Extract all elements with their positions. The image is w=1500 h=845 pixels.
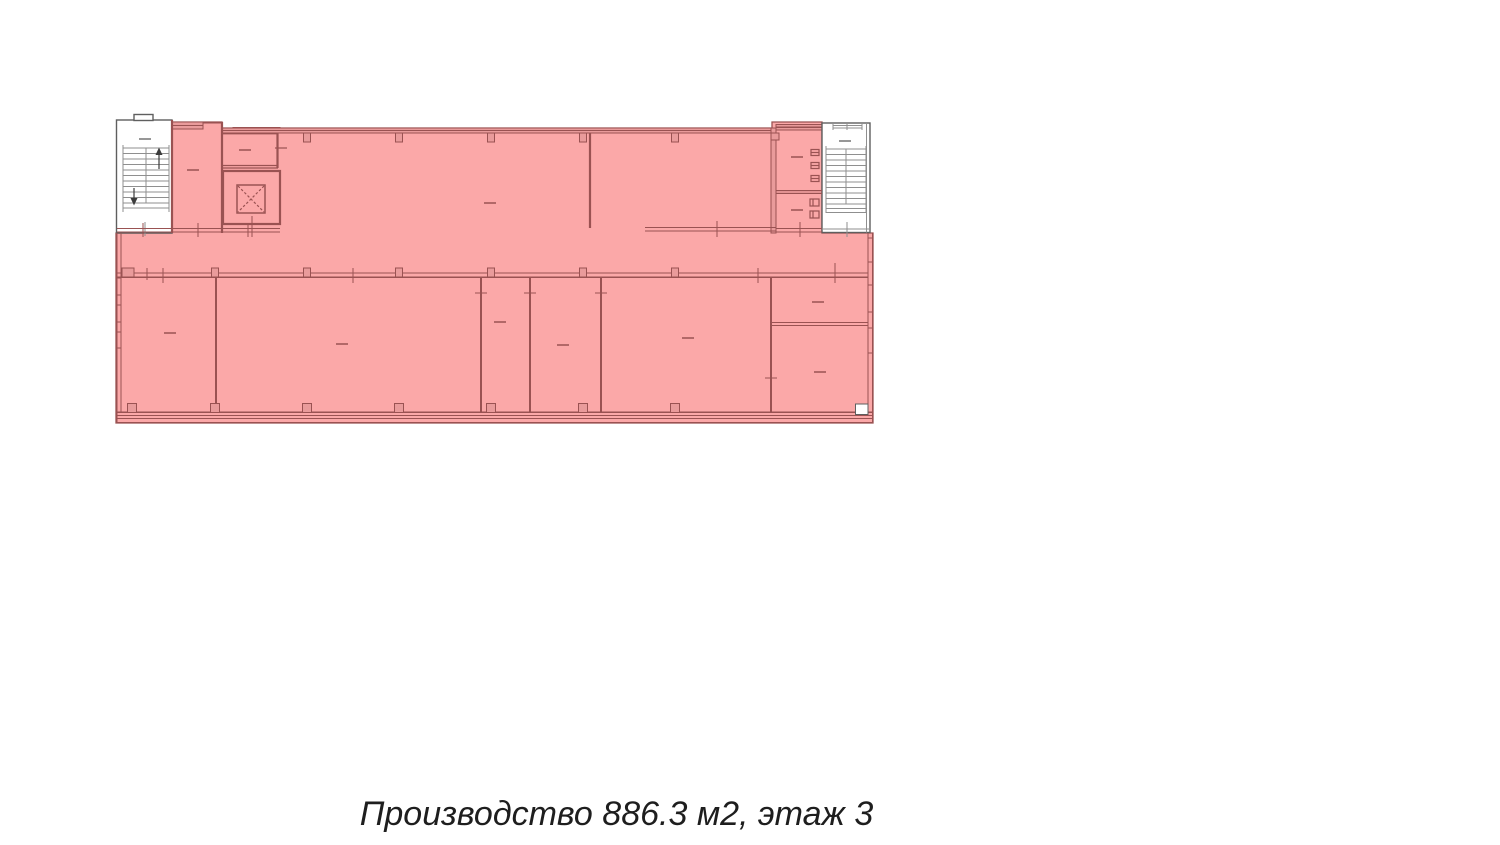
page-canvas: Производство 886.3 м2, этаж 3 [0, 0, 1500, 845]
corner-block [856, 404, 869, 415]
right-staircase [822, 123, 870, 237]
plan-caption: Производство 886.3 м2, этаж 3 [189, 794, 1044, 834]
floor-plan-drawing [113, 111, 879, 427]
stair-roof-notch [134, 115, 153, 121]
floor-plan [113, 111, 879, 427]
left-staircase [117, 115, 173, 237]
